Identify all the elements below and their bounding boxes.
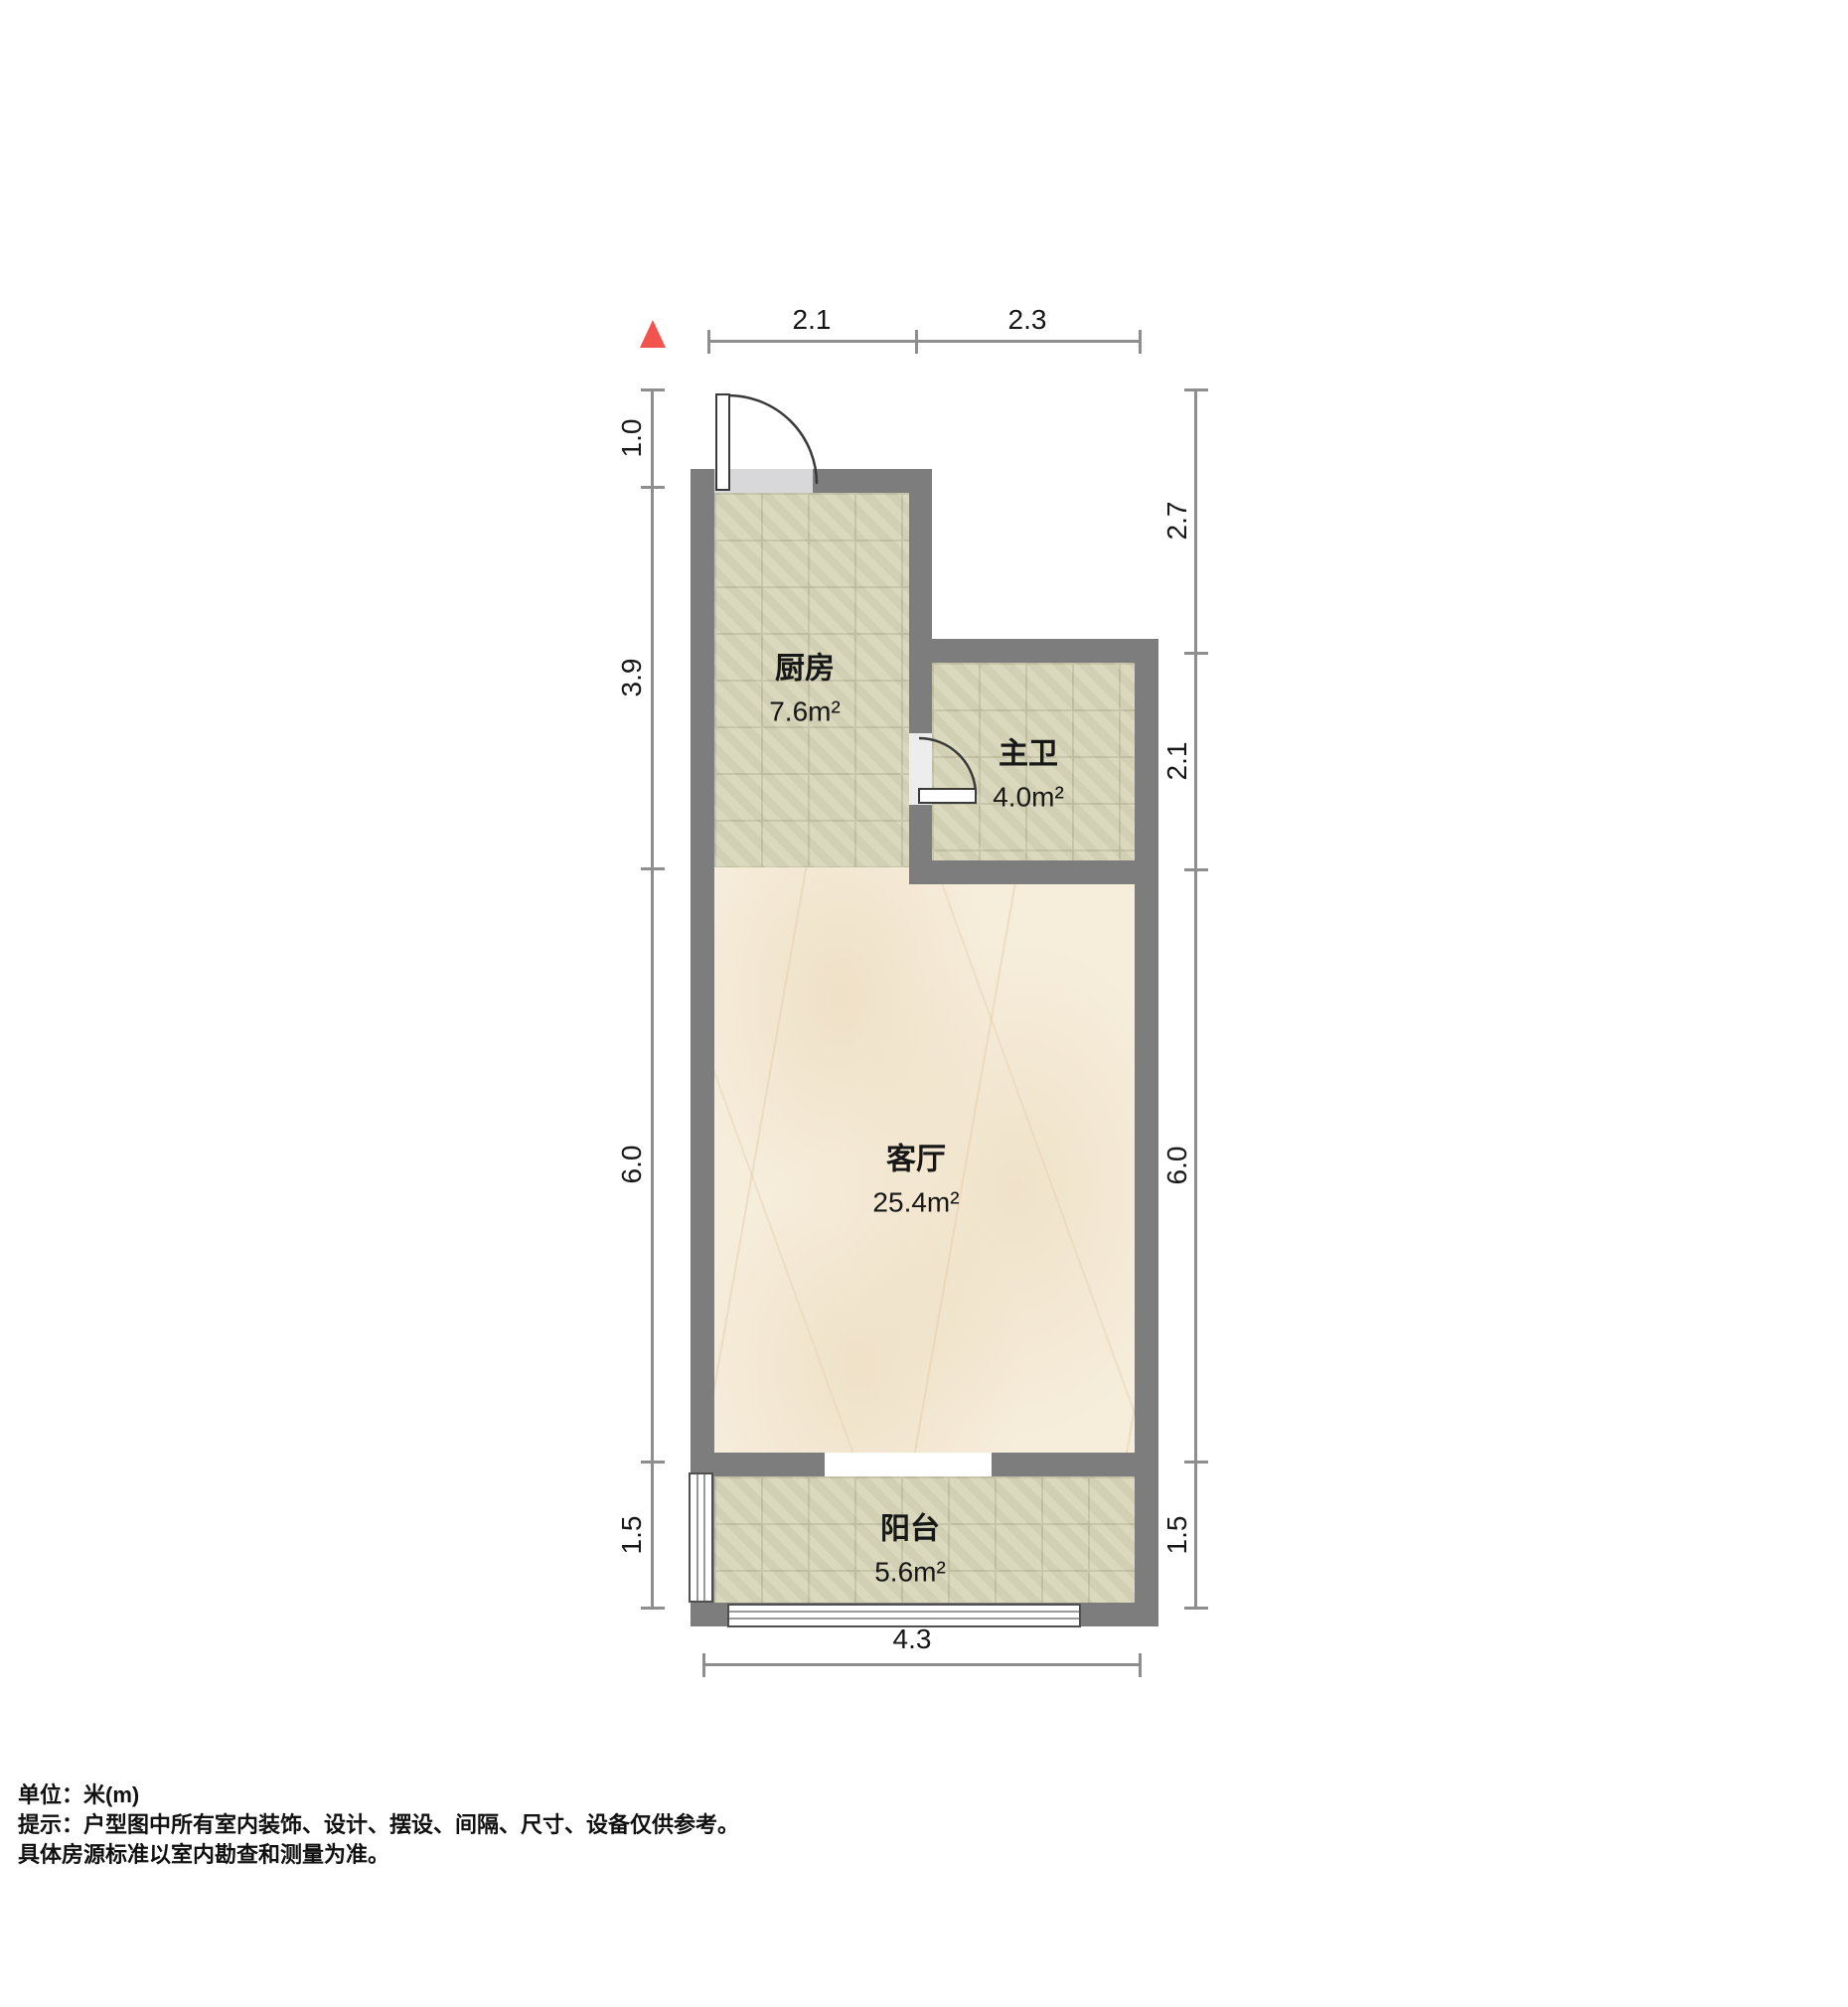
kitchen-name: 厨房 [775, 644, 835, 688]
wall-kitchen-right [909, 469, 932, 884]
wall-balcony-divider-right [992, 1453, 1135, 1476]
bathroom-area: 4.0m² [993, 782, 1064, 814]
dim-right-line [1194, 389, 1197, 1608]
balcony-label: 阳台 5.6m² [874, 1504, 946, 1589]
balcony-name: 阳台 [880, 1504, 940, 1548]
wall-left [691, 469, 714, 1626]
dim-tick [641, 1461, 665, 1464]
wall-bathroom-top [932, 639, 1158, 663]
dim-tick [641, 388, 665, 391]
dim-bottom-line [703, 1663, 1141, 1666]
floorplan-canvas: 厨房 7.6m² 主卫 4.0m² 客厅 25.4m² 阳台 5.6m² 2.1… [0, 0, 1848, 2007]
dim-right-label-3: 6.0 [1161, 1147, 1193, 1185]
footer-unit-line: 单位：米(m) [18, 1780, 739, 1810]
dim-right-label-1: 2.7 [1161, 502, 1193, 540]
entry-door-leaf [716, 394, 729, 490]
window-pane-line [729, 1618, 1079, 1620]
dim-right-label-2: 2.1 [1161, 742, 1193, 781]
window-pane-line [729, 1611, 1079, 1613]
dim-left-line [651, 389, 654, 1608]
dim-tick [1184, 652, 1208, 655]
balcony-area: 5.6m² [874, 1557, 946, 1589]
dim-tick [1184, 1461, 1208, 1464]
dim-tick [707, 330, 710, 354]
dim-bottom-label-1: 4.3 [893, 1623, 932, 1655]
bathroom-door-leaf [919, 789, 976, 803]
footer-disclaimer: 单位：米(m) 提示：户型图中所有室内装饰、设计、摆设、间隔、尺寸、设备仅供参考… [18, 1780, 739, 1870]
living-room-area: 25.4m² [872, 1187, 959, 1219]
dim-tick [1184, 868, 1208, 871]
dim-left-label-1: 1.0 [616, 419, 648, 458]
bathroom-label: 主卫 4.0m² [993, 729, 1064, 814]
wall-balcony-divider-left [714, 1453, 825, 1476]
dim-tick [641, 486, 665, 489]
dim-top-line [708, 340, 1140, 343]
footer-notice-line1: 提示：户型图中所有室内装饰、设计、摆设、间隔、尺寸、设备仅供参考。 [18, 1810, 739, 1840]
dim-tick [1139, 1653, 1142, 1677]
dim-tick [1139, 330, 1142, 354]
footer-notice-line2: 具体房源标准以室内勘查和测量为准。 [18, 1840, 739, 1870]
bathroom-door-icon [902, 728, 986, 810]
kitchen-area: 7.6m² [769, 696, 841, 728]
dim-tick [641, 1607, 665, 1610]
bathroom-name: 主卫 [999, 729, 1058, 773]
dim-tick [915, 330, 918, 354]
living-room-label: 客厅 25.4m² [872, 1135, 959, 1219]
dim-top-label-2: 2.3 [1008, 304, 1047, 336]
wall-bathroom-bottom [909, 860, 1158, 884]
balcony-side-window-icon [689, 1472, 713, 1603]
north-arrow-icon [640, 320, 666, 348]
dim-left-label-2: 3.9 [616, 659, 648, 697]
dim-tick [1184, 388, 1208, 391]
dim-right-label-4: 1.5 [1161, 1516, 1193, 1555]
dim-tick [702, 1653, 705, 1677]
window-pane-line [696, 1474, 698, 1601]
dim-tick [641, 867, 665, 870]
dim-tick [1184, 1607, 1208, 1610]
dim-left-label-3: 6.0 [616, 1146, 648, 1184]
kitchen-label: 厨房 7.6m² [769, 644, 841, 728]
window-pane-line [703, 1474, 705, 1601]
living-room-name: 客厅 [886, 1135, 946, 1178]
dim-top-label-1: 2.1 [793, 304, 832, 336]
wall-right [1135, 639, 1158, 1626]
entry-door-icon [691, 387, 830, 497]
dim-left-label-4: 1.5 [616, 1516, 648, 1555]
